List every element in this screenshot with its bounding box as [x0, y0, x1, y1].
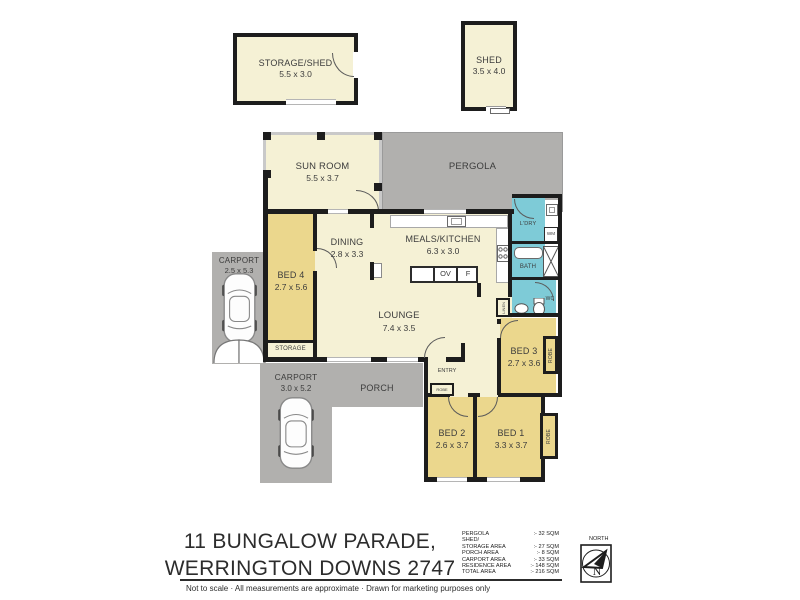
kitchen-dims: 6.3 x 3.0 [398, 246, 488, 256]
room-dims: 3.5 x 4.0 [473, 66, 506, 77]
wall-segment [477, 283, 481, 297]
entry-label: ENTRY [432, 368, 462, 374]
footer-divider [180, 579, 562, 581]
room-label: PERGOLA [449, 161, 496, 173]
room-dims: 5.5 x 3.0 [279, 69, 312, 80]
compass-icon: N [580, 544, 612, 583]
area-row: SHED/ STORAGE AREA:- 27 SQM [462, 537, 559, 550]
wall-segment [473, 397, 477, 481]
carport-lower-label: CARPORT [261, 372, 331, 382]
room-dims: 5.5 x 3.7 [306, 173, 339, 184]
dining-label: DINING [312, 237, 382, 247]
wall-segment [424, 357, 428, 481]
wall-segment [461, 343, 465, 362]
area-summary-table: PERGOLA:- 32 SQM SHED/ STORAGE AREA:- 27… [462, 531, 559, 576]
porch-label: PORCH [342, 383, 412, 393]
bed1-dims: 3.3 x 3.7 [476, 440, 546, 450]
washing-machine-label: WM [544, 231, 558, 236]
bath-label: BATH [511, 264, 545, 270]
wall-segment [266, 340, 314, 343]
wall-segment [512, 277, 558, 280]
floor-plan: PERGOLA CARPORT 2.5 x 5.3 PORCH CARPORT … [0, 0, 800, 600]
laundry-label: L'DRY [511, 221, 545, 227]
disclaimer-text: Not to scale · All measurements are appr… [186, 584, 490, 593]
bed1-label: BED 1 [476, 428, 546, 438]
window-segment [328, 209, 348, 214]
room-label: CARPORT [219, 256, 259, 266]
lounge-label: LOUNGE [354, 310, 444, 321]
bed4-dims: 2.7 x 5.6 [256, 282, 326, 292]
wall-segment [446, 357, 462, 362]
address-line-1: 11 BUNGALOW PARADE, [150, 528, 470, 555]
room-label: STORAGE/SHED [259, 58, 333, 69]
wall-segment [370, 262, 374, 280]
carport-lower-dims: 3.0 x 5.2 [261, 384, 331, 393]
oven-label: OV [435, 269, 456, 278]
bed3-dims: 2.7 x 3.6 [489, 358, 559, 368]
wall-segment [370, 213, 374, 228]
wall-segment [263, 209, 514, 214]
wall-segment [512, 194, 562, 198]
wc-label: WC [543, 296, 557, 302]
shower-icon [543, 246, 559, 277]
storage-small-label: STORAGE [266, 346, 315, 352]
bed3-label: BED 3 [489, 346, 559, 356]
carport-door-arcs [213, 339, 265, 363]
car-icon [221, 272, 258, 344]
robe-hall: ROBE [430, 383, 454, 396]
fridge-label: F [458, 269, 478, 278]
wall-segment [512, 241, 558, 244]
window-segment [424, 209, 466, 214]
area-row: TOTAL AREA:- 216 SQM [462, 569, 559, 575]
window-segment [387, 357, 418, 362]
wall-segment [497, 319, 501, 324]
north-label: NORTH [589, 536, 608, 542]
wall-segment [498, 393, 558, 397]
lounge-dims: 7.4 x 3.5 [354, 323, 444, 333]
room-label: SHED [476, 55, 502, 66]
wall-segment [263, 176, 268, 213]
kitchen-label: MEALS/KITCHEN [398, 234, 488, 244]
address-line-2: WERRINGTON DOWNS 2747 [150, 555, 470, 582]
dining-dims: 2.8 x 3.3 [312, 249, 382, 259]
window-segment [437, 477, 467, 482]
window-segment [487, 477, 520, 482]
room-shed: SHED 3.5 x 4.0 [461, 21, 517, 111]
wall-segment [508, 283, 512, 297]
svg-text:N: N [593, 564, 602, 578]
car-icon [277, 396, 315, 470]
linen-cupboard: LINEN [496, 298, 510, 317]
room-label: SUN ROOM [296, 161, 350, 173]
bed4-label: BED 4 [256, 270, 326, 280]
property-address: 11 BUNGALOW PARADE, WERRINGTON DOWNS 274… [150, 528, 470, 582]
window-segment [327, 357, 371, 362]
